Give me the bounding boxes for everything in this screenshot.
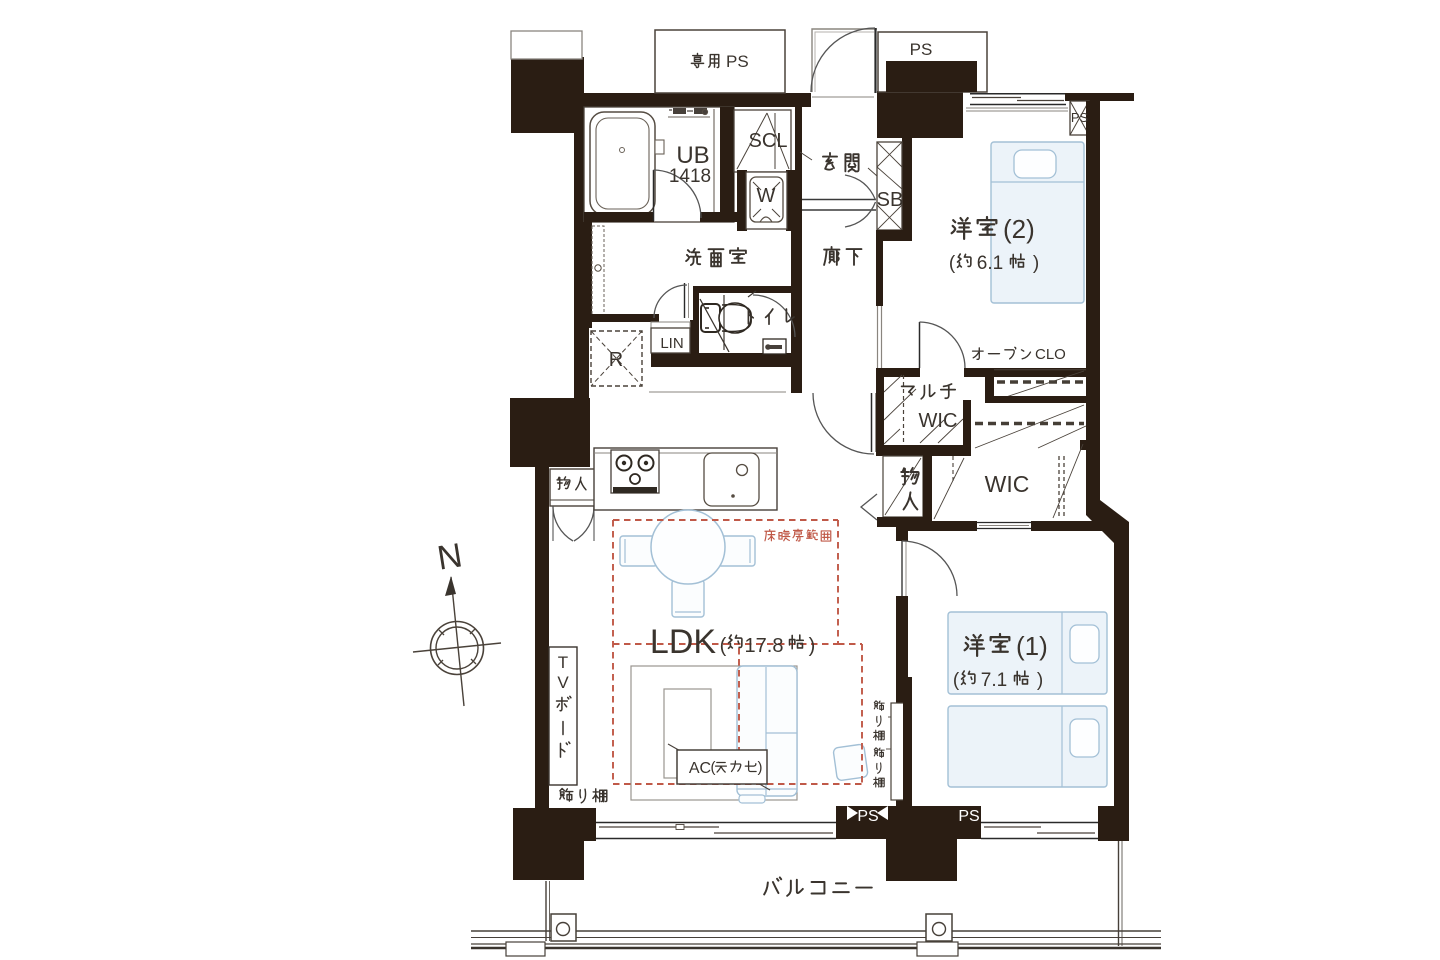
- svg-text:(1): (1): [1016, 631, 1048, 661]
- svg-text:W: W: [757, 185, 776, 207]
- svg-text:AC: AC: [689, 760, 711, 777]
- svg-text:(2): (2): [1003, 214, 1035, 244]
- svg-text:CLO: CLO: [1035, 346, 1066, 363]
- svg-text:UB: UB: [676, 142, 709, 169]
- svg-text:(: (: [949, 253, 956, 274]
- svg-text:SB: SB: [877, 189, 904, 211]
- svg-text:V: V: [557, 673, 569, 692]
- svg-text:(: (: [711, 759, 716, 776]
- svg-text:6.1: 6.1: [977, 253, 1003, 274]
- svg-text:7.1: 7.1: [981, 670, 1007, 691]
- svg-text:T: T: [558, 653, 568, 672]
- svg-text:WIC: WIC: [985, 471, 1030, 497]
- svg-text:(: (: [720, 635, 727, 657]
- svg-text:PS: PS: [857, 808, 878, 825]
- svg-text:R: R: [609, 349, 623, 371]
- svg-text:PS: PS: [1071, 110, 1089, 125]
- svg-text:PS: PS: [910, 40, 933, 59]
- svg-text:): ): [809, 635, 816, 657]
- svg-text:LDK: LDK: [650, 623, 716, 661]
- svg-text:): ): [1033, 253, 1039, 274]
- svg-text:1418: 1418: [669, 166, 711, 187]
- svg-text:WIC: WIC: [919, 410, 958, 432]
- svg-text:PS: PS: [726, 52, 749, 71]
- svg-text:LIN: LIN: [660, 335, 683, 352]
- svg-text:): ): [1037, 670, 1043, 691]
- svg-text:(: (: [953, 670, 960, 691]
- svg-text:): ): [758, 759, 763, 776]
- svg-text:PS: PS: [958, 808, 979, 825]
- svg-text:17.8: 17.8: [745, 635, 784, 657]
- svg-text:SCL: SCL: [749, 130, 788, 152]
